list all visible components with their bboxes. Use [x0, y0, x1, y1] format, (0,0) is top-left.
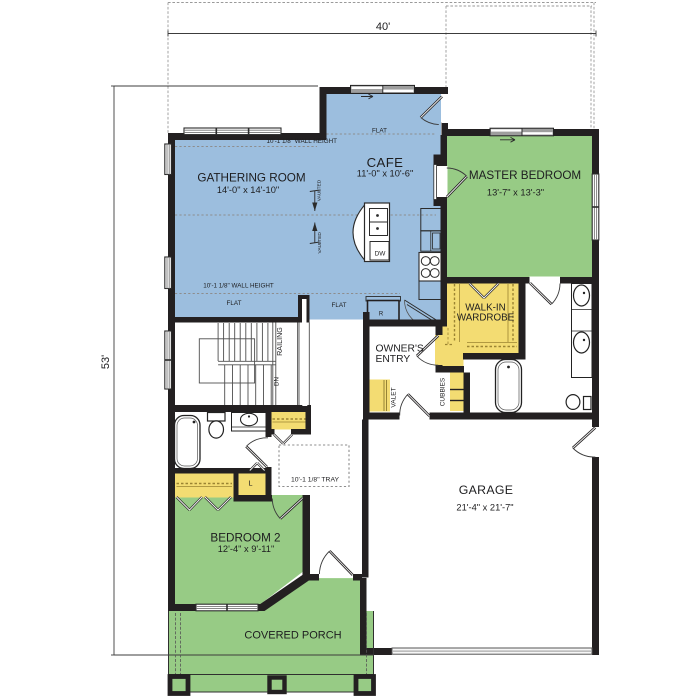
svg-text:WARDROBE: WARDROBE [457, 313, 515, 324]
svg-text:10'-1 1/8" TRAY: 10'-1 1/8" TRAY [291, 477, 340, 484]
svg-text:FLAT: FLAT [332, 302, 347, 309]
svg-text:L: L [248, 479, 252, 488]
svg-text:ENTRY: ENTRY [376, 354, 411, 365]
svg-text:DN: DN [274, 377, 281, 386]
svg-text:COVERED PORCH: COVERED PORCH [244, 630, 341, 642]
svg-text:FLAT: FLAT [227, 300, 242, 307]
svg-text:CUBBIES: CUBBIES [440, 377, 447, 406]
svg-text:GARAGE: GARAGE [459, 483, 513, 497]
svg-text:OWNER'S: OWNER'S [376, 344, 424, 355]
svg-text:FLAT: FLAT [372, 128, 387, 135]
svg-text:RAILING: RAILING [275, 327, 284, 356]
svg-text:11'-0" x 10'-6": 11'-0" x 10'-6" [357, 169, 414, 179]
svg-text:12'-4" x 9'-11": 12'-4" x 9'-11" [218, 544, 275, 554]
svg-text:R: R [379, 312, 384, 318]
svg-text:GATHERING ROOM: GATHERING ROOM [197, 172, 305, 185]
svg-text:BEDROOM 2: BEDROOM 2 [210, 532, 280, 545]
svg-text:40': 40' [376, 21, 390, 33]
svg-text:MASTER BEDROOM: MASTER BEDROOM [469, 169, 581, 182]
svg-text:VAULTED: VAULTED [316, 179, 322, 201]
svg-text:VAULTED: VAULTED [317, 232, 323, 254]
svg-text:10'-1 1/8" WALL HEIGHT: 10'-1 1/8" WALL HEIGHT [266, 138, 337, 145]
svg-text:14'-0" x 14'-10": 14'-0" x 14'-10" [217, 185, 279, 195]
svg-text:10'-1 1/8" WALL HEIGHT: 10'-1 1/8" WALL HEIGHT [203, 283, 274, 290]
svg-text:13'-7" x 13'-3": 13'-7" x 13'-3" [487, 188, 544, 198]
svg-text:VALET: VALET [391, 387, 398, 407]
svg-text:DW: DW [375, 251, 387, 258]
svg-text:53': 53' [100, 355, 112, 369]
svg-text:21'-4" x 21'-7": 21'-4" x 21'-7" [456, 503, 513, 513]
